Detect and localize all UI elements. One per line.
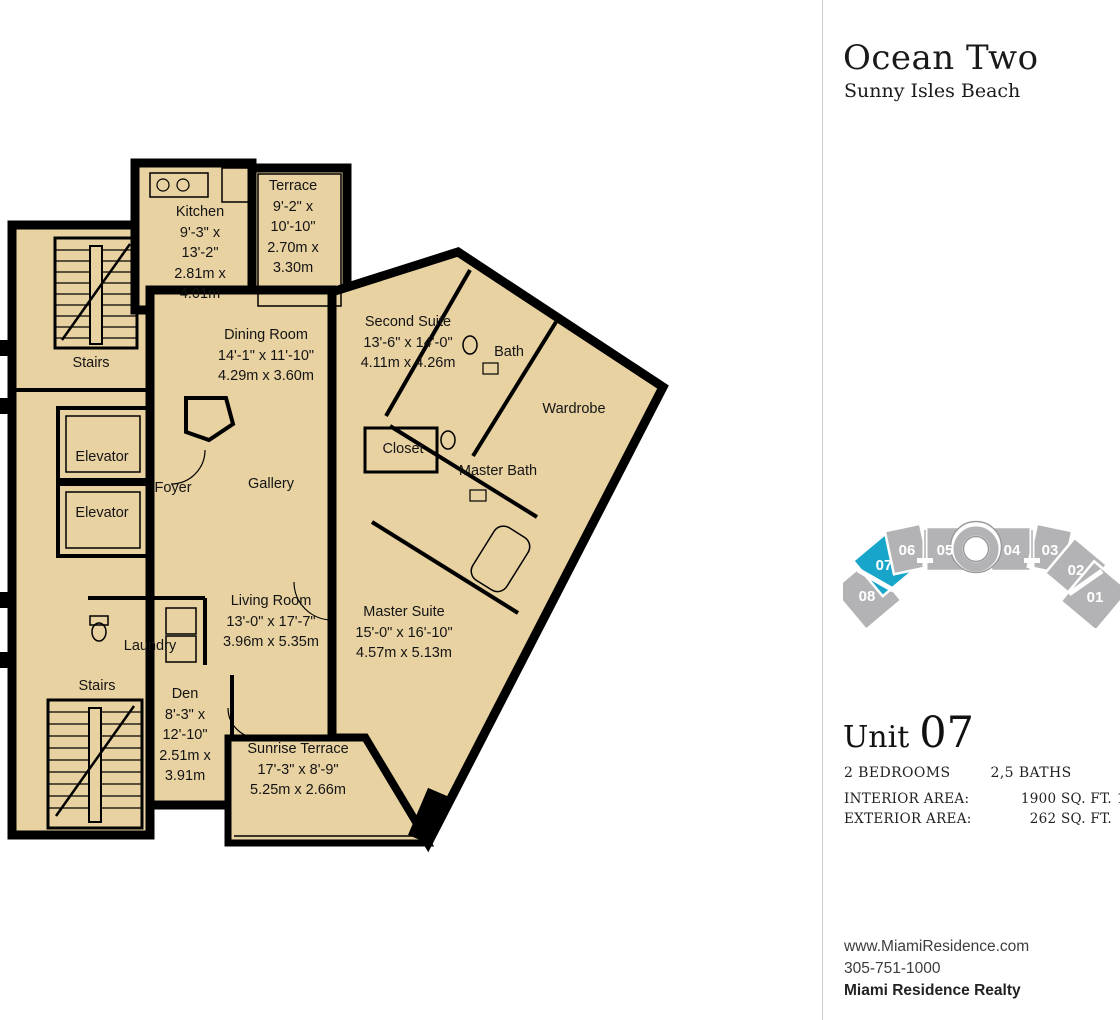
room-label-elevator-2: Elevator [75,503,128,524]
exterior-area-row: EXTERIOR AREA: 262 SQ. FT. 24 M² [844,809,1120,829]
room-label-elevator-1: Elevator [75,447,128,468]
room-label-kitchen: Kitchen 9'-3" x 13'-2" 2.81m x 4.01m [174,202,226,305]
interior-area-sqft: 1900 SQ. FT. [1012,789,1112,809]
minimap-label-05: 05 [937,542,954,559]
room-label-second-suite: Second Suite 13'-6" x 14'-0" 4.11m x 4.2… [361,312,456,374]
exterior-area-label: EXTERIOR AREA: [844,809,1012,829]
unit-number: 07 [919,708,974,758]
minimap-label-02: 02 [1068,562,1085,579]
minimap-label-03: 03 [1042,542,1059,559]
interior-area-m2: 177 M² [1112,789,1120,809]
website-link[interactable]: www.MiamiResidence.com [844,936,1029,958]
minimap-label-06: 06 [899,542,916,559]
room-label-wardrobe: Wardrobe [542,399,605,420]
wall-stub [0,592,13,608]
room-label-closet: Closet [382,439,423,460]
interior-area-row: INTERIOR AREA: 1900 SQ. FT. 177 M² [844,789,1120,809]
bedrooms-text: 2 BEDROOMS [844,765,951,781]
room-label-stairs-top: Stairs [72,353,109,374]
room-label-laundry: Laundry [124,636,176,657]
phone-number: 305-751-1000 [844,958,1029,980]
unit-word: Unit [843,720,909,755]
interior-area-label: INTERIOR AREA: [844,789,1012,809]
minimap-label-07: 07 [876,557,893,574]
building-title: Ocean Two [843,38,1039,78]
area-table: INTERIOR AREA: 1900 SQ. FT. 177 M² EXTER… [844,789,1120,829]
room-label-living: Living Room 13'-0" x 17'-7" 3.96m x 5.35… [223,591,319,653]
minimap-core [951,522,1002,573]
exterior-area-m2: 24 M² [1112,809,1120,829]
contact-block: www.MiamiResidence.com 305-751-1000 Miam… [844,936,1029,1002]
company-name: Miami Residence Realty [844,980,1029,1002]
minimap-label-08: 08 [859,588,876,605]
room-label-foyer: Foyer [154,478,191,499]
wall-stub [0,652,13,668]
room-label-den: Den 8'-3" x 12'-10" 2.51m x 3.91m [159,684,211,787]
room-label-terrace: Terrace 9'-2" x 10'-10" 2.70m x 3.30m [267,176,319,279]
wall-stub [0,398,13,414]
building-minimap: 01 02 03 04 05 06 07 08 [843,506,1120,628]
column-divider [822,0,823,1020]
room-label-dining: Dining Room 14'-1" x 11'-10" 4.29m x 3.6… [218,325,314,387]
page: Kitchen 9'-3" x 13'-2" 2.81m x 4.01m Ter… [0,0,1120,1020]
unit-title: Unit07 [843,708,974,758]
room-label-bath: Bath [494,342,524,363]
minimap-label-01: 01 [1087,589,1104,606]
floor-plan: Kitchen 9'-3" x 13'-2" 2.81m x 4.01m Ter… [0,140,720,870]
minimap-label-04: 04 [1004,542,1021,559]
exterior-area-sqft: 262 SQ. FT. [1012,809,1112,829]
room-label-gallery: Gallery [248,474,294,495]
corner-wall [420,793,440,840]
room-label-stairs-bottom: Stairs [78,676,115,697]
building-subtitle: Sunny Isles Beach [844,80,1020,102]
room-label-master-bath: Master Bath [459,461,537,482]
beds-baths-line: 2 BEDROOMS 2,5 BATHS [844,765,1072,781]
wall-stub [0,340,13,356]
baths-text: 2,5 BATHS [991,765,1072,781]
room-label-sunrise: Sunrise Terrace 17'-3" x 8'-9" 5.25m x 2… [247,739,348,801]
room-label-master-suite: Master Suite 15'-0" x 16'-10" 4.57m x 5.… [355,602,452,664]
